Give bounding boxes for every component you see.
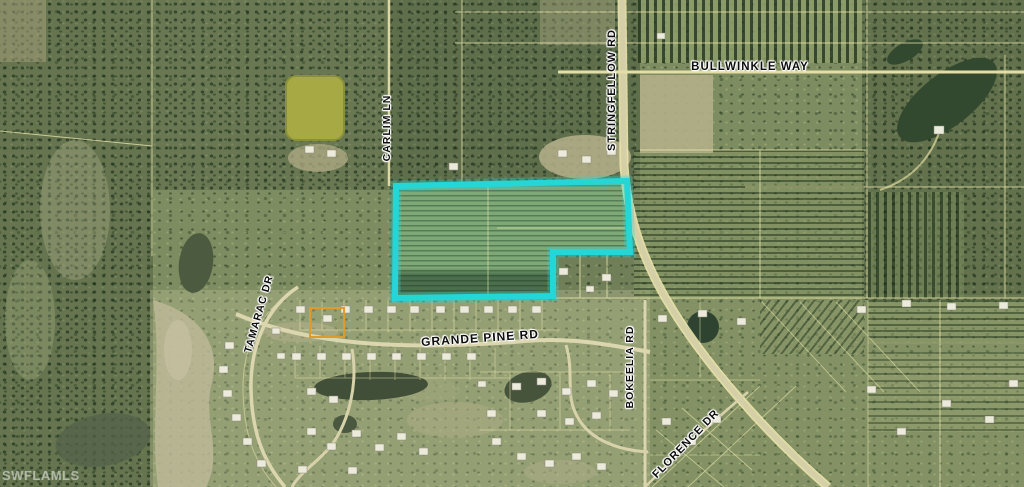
road-label-bullwinkle-way: BULLWINKLE WAY — [691, 61, 809, 73]
mls-watermark: SWFLAMLS — [2, 468, 80, 483]
aerial-map-image: BULLWINKLE WAY STRINGFELLOW RD CARLIM LN… — [0, 0, 1024, 487]
road-label-bokeelia-rd: BOKEELIA RD — [624, 326, 636, 409]
road-label-stringfellow-rd: STRINGFELLOW RD — [606, 29, 618, 151]
road-label-carlim-ln: CARLIM LN — [381, 95, 393, 162]
pond-olive-top-left — [286, 76, 344, 140]
highlighted-parcel-outline — [395, 181, 630, 298]
map-vector-overlay — [0, 0, 1024, 487]
